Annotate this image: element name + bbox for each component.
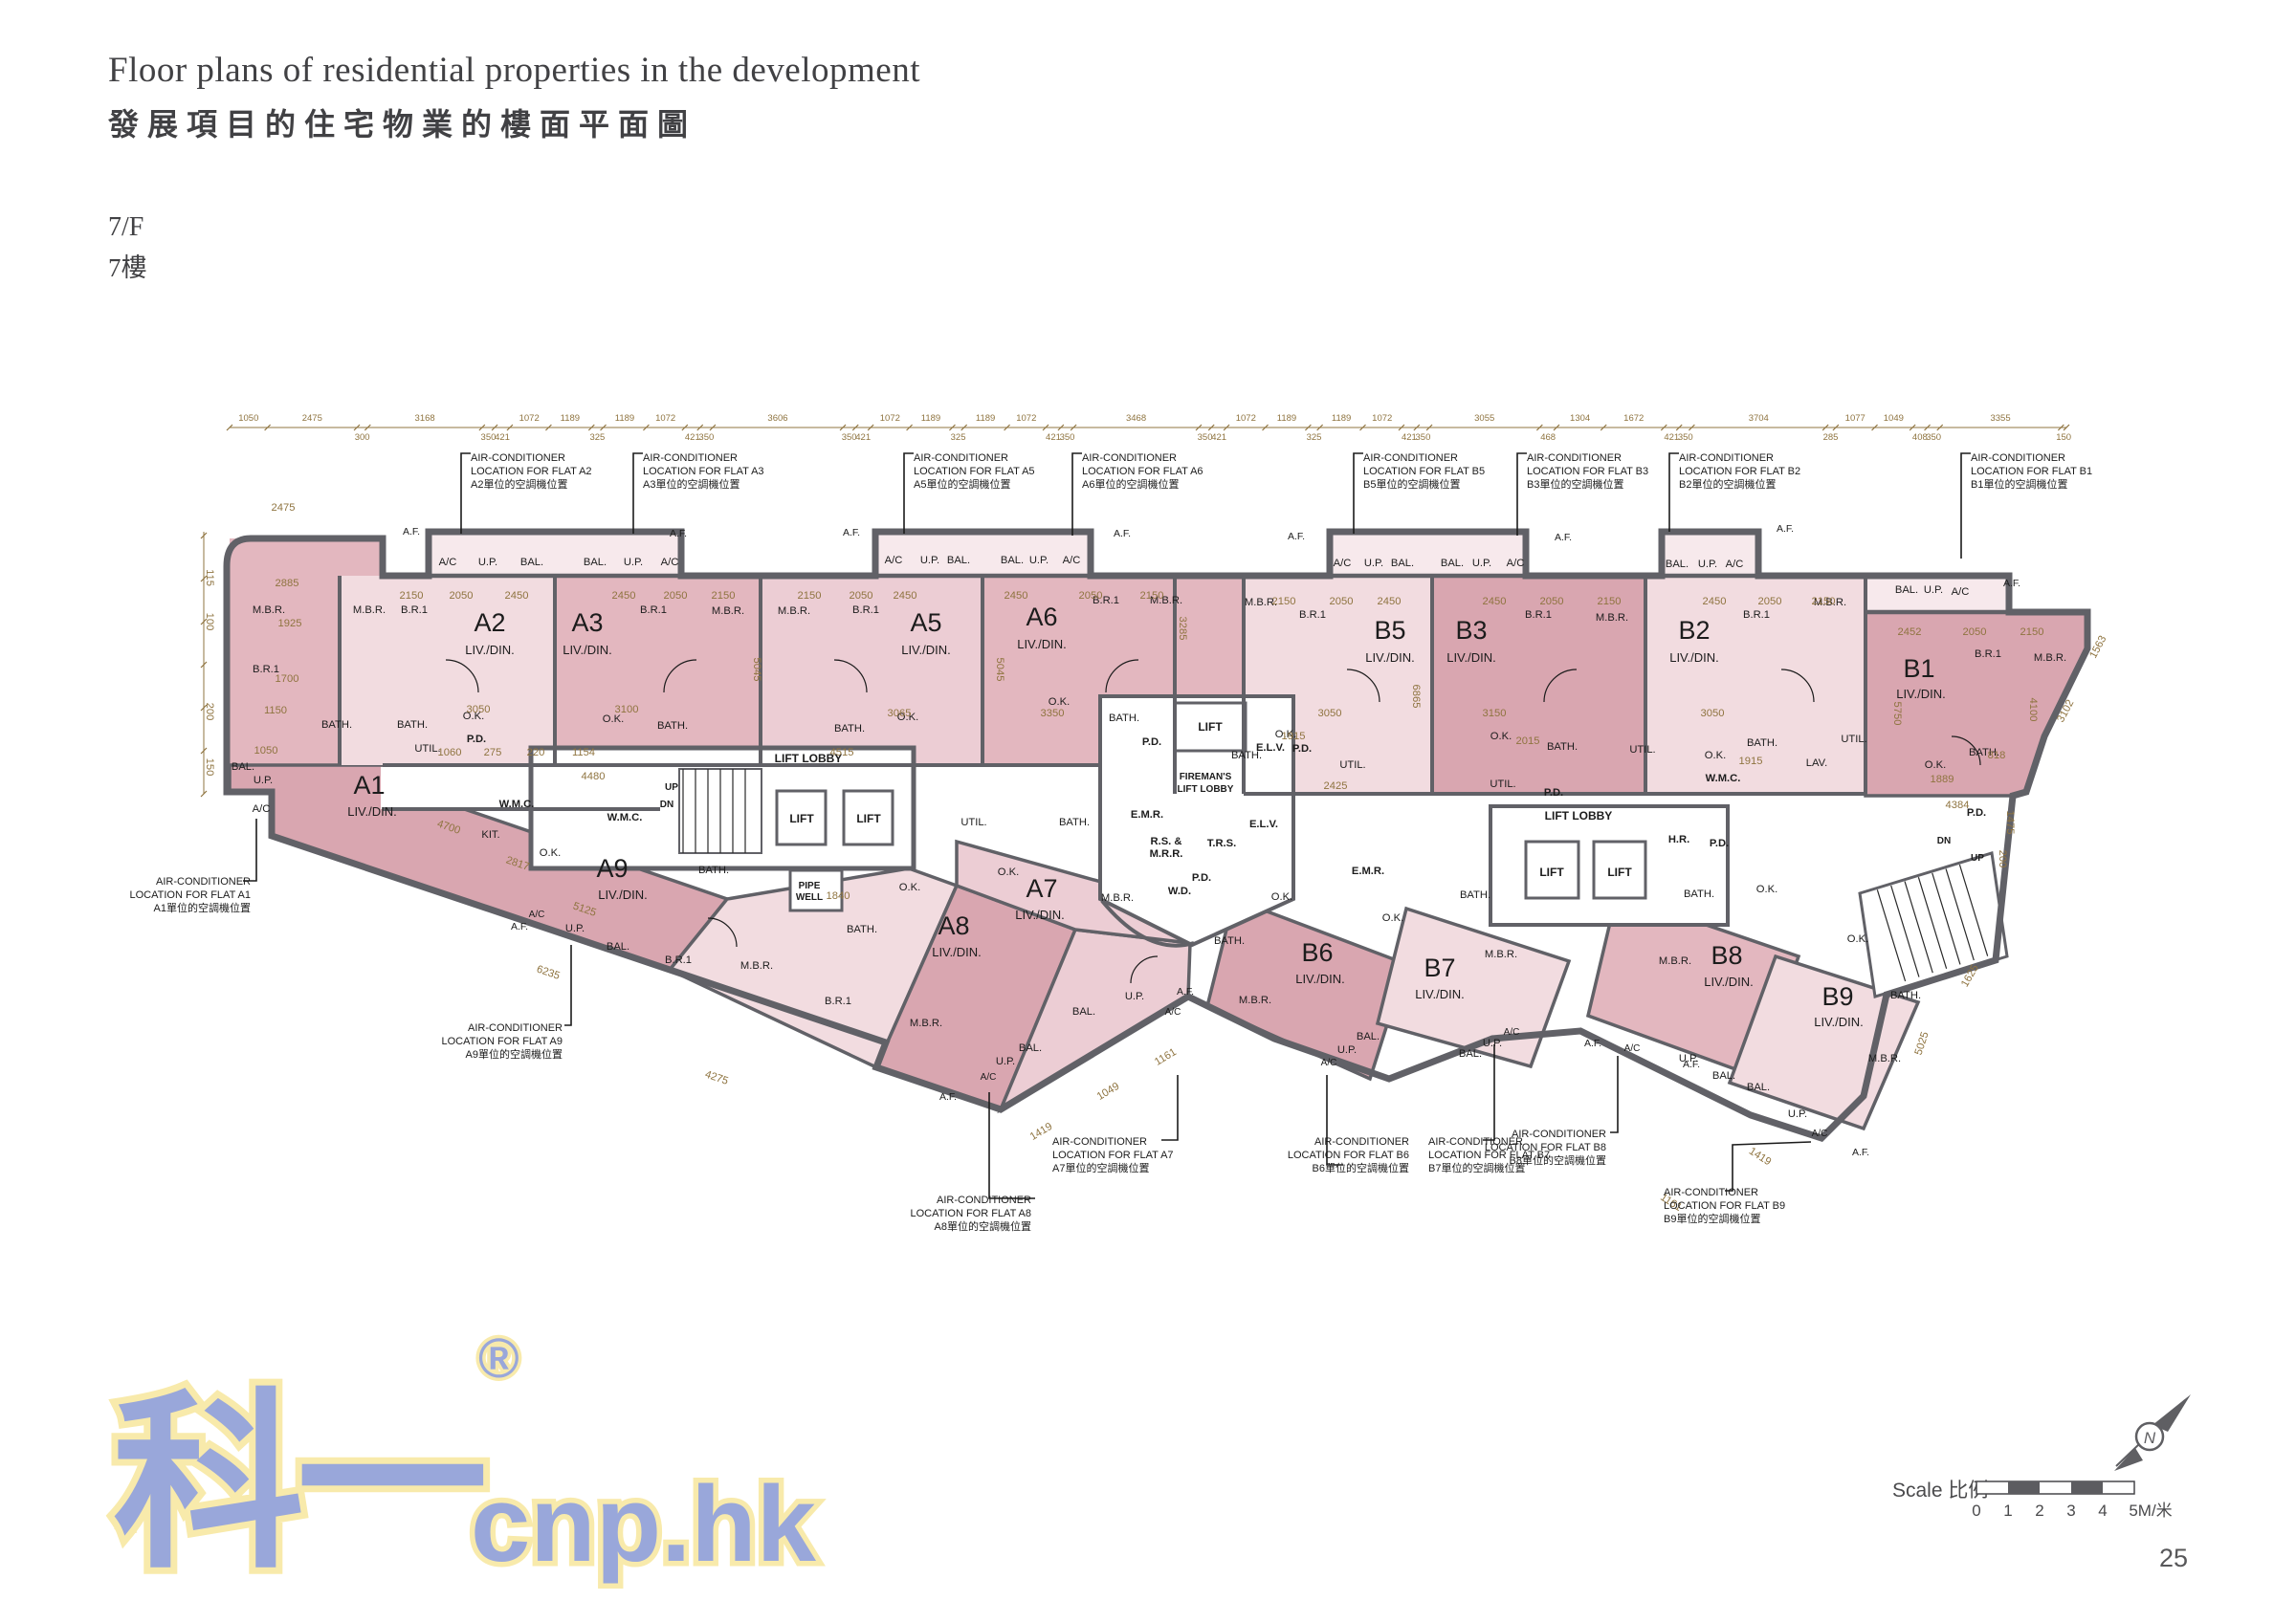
callout-ac-flat-a5-line-3: A5單位的空調機位置 <box>914 477 1010 491</box>
label-b-r-1: B.R.1 <box>852 604 879 616</box>
label-150: 150 <box>204 758 215 777</box>
label-u-p-: U.P. <box>1029 555 1049 566</box>
dim-value: 421 <box>855 432 871 443</box>
label-2150: 2150 <box>1272 596 1296 607</box>
label-a-c: A/C <box>1726 559 1744 570</box>
label-4515: 4515 <box>830 747 854 758</box>
callout-ac-flat-a9-line-2: LOCATION FOR FLAT A9 <box>441 1036 563 1047</box>
label-bath-: BATH. <box>1684 888 1714 900</box>
label-a-f-: A.F. <box>939 1091 957 1103</box>
dim-value: 1189 <box>1332 413 1351 424</box>
label-b-r-1: B.R.1 <box>1525 609 1552 621</box>
callout-ac-flat-b9-line-1: AIR-CONDITIONER <box>1664 1187 1758 1198</box>
callout-ac-flat-b2-line-1: AIR-CONDITIONER <box>1679 452 1774 464</box>
balcony-bump-b5b3 <box>1330 532 1526 576</box>
label-1154: 1154 <box>572 747 595 758</box>
scale-bar-seg-1 <box>2008 1481 2040 1494</box>
label-dn: DN <box>1937 836 1951 846</box>
label-e-m-r-: E.M.R. <box>1352 866 1384 877</box>
label-lav-: LAV. <box>1806 757 1827 769</box>
dim-value: 285 <box>1823 432 1839 443</box>
label-liv-din-: LIV./DIN. <box>932 945 982 959</box>
label-up: UP <box>665 782 678 793</box>
label-1419: 1419 <box>1028 1121 1055 1143</box>
label-u-p-: U.P. <box>1472 558 1491 569</box>
label-1050: 1050 <box>254 745 278 757</box>
callout-ac-flat-b3-leader <box>1517 453 1527 536</box>
callout-ac-flat-b8-line-3: B8單位的空調機位置 <box>1510 1153 1606 1167</box>
label-b-r-1: B.R.1 <box>825 996 851 1007</box>
dim-value: 1072 <box>1016 413 1036 424</box>
callout-ac-flat-a7-line-3: A7單位的空調機位置 <box>1052 1161 1149 1174</box>
label-2150: 2150 <box>1812 596 1836 607</box>
dim-value: 150 <box>2056 432 2071 443</box>
scale-tick-1: 1 <box>2003 1502 2012 1520</box>
label-2150: 2150 <box>400 590 424 602</box>
label-bal-: BAL. <box>520 557 543 568</box>
label-bal-: BAL. <box>584 557 607 568</box>
label-3100: 3100 <box>615 704 639 715</box>
label-5045: 5045 <box>994 658 1005 682</box>
dim-value: 1072 <box>1372 413 1392 424</box>
label-a-c: A/C <box>1334 558 1352 569</box>
label-lift: LIFT <box>1607 866 1632 879</box>
dim-value: 2475 <box>302 413 322 424</box>
label-a-f-: A.F. <box>511 921 528 932</box>
label-2015: 2015 <box>1516 735 1540 747</box>
label-m-b-r-: M.B.R. <box>712 605 744 617</box>
watermark-latin: cnp.hk <box>471 1464 817 1584</box>
label-m-b-r-: M.B.R. <box>1239 995 1271 1006</box>
compass-tail <box>2114 1448 2143 1471</box>
label-2050: 2050 <box>1758 596 1782 607</box>
label-a-c: A/C <box>885 555 903 566</box>
label-1915: 1915 <box>1739 756 1763 767</box>
label-2050: 2050 <box>850 590 873 602</box>
unit-label-b5: B5 <box>1374 616 1405 645</box>
label-a-c: A/C <box>1165 1007 1181 1018</box>
label-bal-: BAL. <box>1357 1031 1380 1042</box>
dim-value: 1672 <box>1623 413 1644 424</box>
dim-value: 325 <box>951 432 966 443</box>
callout-ac-flat-a1-leader <box>243 819 256 881</box>
label-a-c: A/C <box>981 1072 997 1083</box>
dim-value: 1072 <box>1236 413 1256 424</box>
label-4275: 4275 <box>703 1068 729 1086</box>
label-a-f-: A.F. <box>1683 1059 1700 1070</box>
label-o-k-: O.K. <box>1049 696 1070 708</box>
label-e-l-v-: E.L.V. <box>1249 819 1278 830</box>
label-a-c: A/C <box>1063 555 1081 566</box>
label-u-p-: U.P. <box>1125 991 1144 1002</box>
label-w-m-c-: W.M.C. <box>607 812 643 823</box>
label-lift: LIFT <box>1539 866 1564 879</box>
label-lift: LIFT <box>1198 720 1223 734</box>
label-2150: 2150 <box>798 590 822 602</box>
label-a-f-: A.F. <box>2003 578 2020 589</box>
label-util-: UTIL. <box>1339 759 1365 771</box>
label-a-f-: A.F. <box>1584 1038 1601 1049</box>
dim-value: 300 <box>355 432 370 443</box>
label-u-p-: U.P. <box>1483 1038 1502 1049</box>
label-a-c: A/C <box>439 557 457 568</box>
label-1889: 1889 <box>1931 774 1954 785</box>
watermark-registered-icon: ® <box>478 1327 519 1390</box>
dim-value: 421 <box>1211 432 1226 443</box>
label-liv-din-: LIV./DIN. <box>1015 908 1065 922</box>
label-220: 220 <box>527 747 545 758</box>
dim-value: 3055 <box>1474 413 1494 424</box>
label-3150: 3150 <box>1483 708 1507 719</box>
label-2450: 2450 <box>612 590 636 602</box>
dim-value: 1189 <box>615 413 634 424</box>
callout-ac-flat-b7-leader <box>1483 1044 1494 1140</box>
label-p-d-: P.D. <box>1142 736 1161 748</box>
label-u-p-: U.P. <box>920 555 939 566</box>
label-m-b-r-: M.B.R. <box>2034 652 2066 664</box>
label-a-f-: A.F. <box>1177 986 1194 998</box>
label-818: 818 <box>1988 750 2006 761</box>
label-a-c: A/C <box>529 910 545 920</box>
label-liv-din-: LIV./DIN. <box>1669 650 1719 665</box>
label-2450: 2450 <box>894 590 917 602</box>
label-5750: 5750 <box>1891 702 1903 726</box>
callout-ac-flat-a6-line-3: A6單位的空調機位置 <box>1082 477 1179 491</box>
unit-label-a3: A3 <box>571 608 603 637</box>
callout-ac-flat-a2-line-3: A2單位的空調機位置 <box>471 477 567 491</box>
dim-value: 468 <box>1540 432 1556 443</box>
unit-label-a2: A2 <box>474 608 505 637</box>
callout-ac-flat-b3-line-3: B3單位的空調機位置 <box>1527 477 1623 491</box>
callout-ac-flat-b2-leader <box>1669 453 1679 532</box>
callout-ac-flat-b5-leader <box>1354 453 1363 534</box>
callout-ac-flat-a7-line-1: AIR-CONDITIONER <box>1052 1136 1147 1148</box>
label-200: 200 <box>204 703 215 721</box>
page-number: 25 <box>2159 1544 2188 1572</box>
label-a-f-: A.F. <box>843 527 860 538</box>
dim-value: 421 <box>495 432 510 443</box>
callout-ac-flat-b6-line-1: AIR-CONDITIONER <box>1314 1136 1409 1148</box>
label-m-b-r-: M.B.R. <box>910 1018 942 1029</box>
dim-value: 1072 <box>519 413 540 424</box>
label-1915: 1915 <box>1282 731 1306 742</box>
label-a-f-: A.F. <box>670 528 687 539</box>
label-5025: 5025 <box>1913 1030 1932 1056</box>
callout-ac-flat-b1-line-3: B1單位的空調機位置 <box>1971 477 2067 491</box>
label-2050: 2050 <box>1079 590 1103 602</box>
label-a-f-: A.F. <box>1288 531 1305 542</box>
unit-label-a8: A8 <box>938 911 969 940</box>
unit-label-b9: B9 <box>1821 982 1853 1011</box>
dim-value: 1050 <box>238 413 258 424</box>
callout-ac-flat-a2-line-2: LOCATION FOR FLAT A2 <box>471 466 592 477</box>
scale-tick-5: 5M/米 <box>2129 1502 2172 1520</box>
label-kit-: KIT. <box>481 829 499 841</box>
callout-ac-flat-b8-leader <box>1610 1056 1618 1132</box>
dim-value: 350 <box>842 432 857 443</box>
label-bal-: BAL. <box>1072 1006 1095 1018</box>
label-bal-: BAL. <box>1666 559 1689 570</box>
callout-ac-flat-b5-line-2: LOCATION FOR FLAT B5 <box>1363 466 1485 477</box>
label-4480: 4480 <box>582 771 606 782</box>
dim-value: 325 <box>589 432 605 443</box>
unit-label-b8: B8 <box>1711 941 1742 970</box>
callout-ac-flat-a3-leader <box>633 453 643 534</box>
north-compass-icon: N <box>2114 1394 2191 1471</box>
label-util-: UTIL. <box>960 817 986 828</box>
label-h-r-: H.R. <box>1668 834 1689 845</box>
label-m-b-r-: M.B.R. <box>253 604 285 616</box>
label-o-k-: O.K. <box>1847 933 1868 945</box>
label-2050: 2050 <box>1963 626 1987 638</box>
label-m-b-r-: M.B.R. <box>353 604 386 616</box>
dim-value: 421 <box>685 432 700 443</box>
label-u-p-: U.P. <box>1924 584 1943 596</box>
compass-letter: N <box>2144 1429 2156 1447</box>
label-2050: 2050 <box>450 590 474 602</box>
label-a-f-: A.F. <box>1777 523 1794 535</box>
unit-label-b6: B6 <box>1301 938 1333 967</box>
label-b-r-1: B.R.1 <box>665 954 692 966</box>
label-b-r-1: B.R.1 <box>1975 648 2001 660</box>
dim-value: 421 <box>1664 432 1679 443</box>
scale-bar-seg-3 <box>2071 1481 2103 1494</box>
callout-ac-flat-a2-line-1: AIR-CONDITIONER <box>471 452 565 464</box>
callout-ac-flat-b5-line-3: B5單位的空調機位置 <box>1363 477 1460 491</box>
label-2425: 2425 <box>1324 780 1348 792</box>
label-1840: 1840 <box>827 890 850 902</box>
label-bath-: BATH. <box>1460 889 1490 901</box>
callout-ac-flat-a3-line-2: LOCATION FOR FLAT A3 <box>643 466 764 477</box>
label-p-d-: P.D. <box>467 734 486 745</box>
label-a-c: A/C <box>661 557 679 568</box>
label-u-p-: U.P. <box>624 557 643 568</box>
dim-value: 350 <box>1678 432 1693 443</box>
callout-ac-flat-b1-leader <box>1961 453 1971 559</box>
watermark-logo: 科一 ® cnp.hk <box>113 1327 817 1590</box>
dim-value: 350 <box>481 432 497 443</box>
label-util-: UTIL. <box>1629 744 1655 756</box>
dim-value: 350 <box>698 432 714 443</box>
scale-label: Scale 比例 <box>1892 1480 1988 1502</box>
callout-ac-flat-a1-line-2: LOCATION FOR FLAT A1 <box>129 889 251 901</box>
callout-ac-flat-a5-line-2: LOCATION FOR FLAT A5 <box>914 466 1035 477</box>
label-1150: 1150 <box>264 705 287 716</box>
callout-ac-flat-a6-leader <box>1072 453 1082 536</box>
balcony-bump-a2a3 <box>429 532 681 576</box>
callout-ac-flat-b9-line-3: B9單位的空調機位置 <box>1664 1212 1760 1225</box>
label-6865: 6865 <box>1410 685 1422 709</box>
callout-ac-flat-b6-line-3: B6單位的空調機位置 <box>1313 1161 1409 1174</box>
label-m-b-r-: M.B.R. <box>1101 892 1134 904</box>
label-bath-: BATH. <box>1890 990 1921 1001</box>
callout-ac-flat-b8-line-1: AIR-CONDITIONER <box>1512 1129 1606 1140</box>
label-bal-: BAL. <box>1712 1070 1735 1082</box>
label-3050: 3050 <box>1318 708 1342 719</box>
label-100: 100 <box>204 613 215 631</box>
dim-value: 350 <box>1926 432 1941 443</box>
unit-label-a1: A1 <box>353 771 385 800</box>
callout-ac-flat-b9-leader <box>1725 1142 1811 1191</box>
label-u-p-: U.P. <box>1337 1044 1357 1056</box>
dim-value: 350 <box>1060 432 1075 443</box>
label-b-r-1: B.R.1 <box>640 604 667 616</box>
label-a-f-: A.F. <box>1555 532 1572 543</box>
unit-label-b3: B3 <box>1455 616 1487 645</box>
label-lift: LIFT <box>789 812 814 825</box>
label-4100: 4100 <box>2027 698 2039 722</box>
label-a-c: A/C <box>1952 586 1970 598</box>
label-w-d-: W.D. <box>1168 886 1191 897</box>
label-bal-: BAL. <box>1895 584 1918 596</box>
label-3050: 3050 <box>1701 708 1725 719</box>
label-1419: 1419 <box>1747 1146 1773 1169</box>
callout-ac-flat-a7-line-2: LOCATION FOR FLAT A7 <box>1052 1150 1174 1161</box>
floor-plan-drawing: 1050247530031683504211072118932511891072… <box>0 0 2296 1623</box>
label-p-d-: P.D. <box>1292 743 1312 755</box>
label-1700: 1700 <box>276 673 299 685</box>
label-a-c: A/C <box>253 803 271 815</box>
callout-ac-flat-b2-line-2: LOCATION FOR FLAT B2 <box>1679 466 1800 477</box>
callout-ac-flat-b1-line-1: AIR-CONDITIONER <box>1971 452 2065 464</box>
callout-ac-flat-b3-line-1: AIR-CONDITIONER <box>1527 452 1622 464</box>
label-liv-din-: LIV./DIN. <box>1896 687 1946 701</box>
unit-label-a5: A5 <box>910 608 941 637</box>
label-b-r-1: B.R.1 <box>1743 609 1770 621</box>
label-m-r-r-: M.R.R. <box>1150 848 1183 860</box>
label-bath-: BATH. <box>397 719 428 731</box>
label-2450: 2450 <box>1483 596 1507 607</box>
label-bath-: BATH. <box>1109 713 1139 724</box>
label-bath-: BATH. <box>698 865 729 876</box>
unit-label-b7: B7 <box>1424 954 1455 982</box>
callout-ac-flat-a8-line-1: AIR-CONDITIONER <box>937 1195 1031 1206</box>
label-2150: 2150 <box>2020 626 2044 638</box>
callout-ac-flat-a3-line-1: AIR-CONDITIONER <box>643 452 738 464</box>
label-a-c: A/C <box>1624 1043 1641 1054</box>
callout-ac-flat-a1-line-1: AIR-CONDITIONER <box>156 876 251 888</box>
callout-ac-flat-b9-line-2: LOCATION FOR FLAT B9 <box>1664 1200 1785 1212</box>
label-o-k-: O.K. <box>540 847 561 859</box>
callout-ac-flat-a6-line-1: AIR-CONDITIONER <box>1082 452 1177 464</box>
label-liv-din-: LIV./DIN. <box>1814 1015 1864 1029</box>
label-e-l-v-: E.L.V. <box>1256 742 1285 754</box>
label-m-b-r-: M.B.R. <box>1596 612 1628 624</box>
label-t-r-s-: T.R.S. <box>1207 838 1236 849</box>
label-bal-: BAL. <box>1441 558 1464 569</box>
dim-value: 421 <box>1046 432 1061 443</box>
brochure-page: Floor plans of residential properties in… <box>0 0 2296 1623</box>
callout-ac-flat-a1-line-3: A1單位的空調機位置 <box>154 901 251 914</box>
dim-value: 421 <box>1402 432 1417 443</box>
label-bath-: BATH. <box>657 720 688 732</box>
label-up: UP <box>1971 853 1984 864</box>
dim-value: 1189 <box>976 413 995 424</box>
callout-ac-flat-a9-leader <box>564 945 571 1025</box>
label-util-: UTIL. <box>1841 734 1866 745</box>
label-2452: 2452 <box>1898 626 1922 638</box>
watermark-cjk: 科一 <box>113 1377 484 1590</box>
dim-value: 1072 <box>655 413 675 424</box>
label-2450: 2450 <box>1378 596 1402 607</box>
label-3065: 3065 <box>888 708 912 719</box>
label-liv-din-: LIV./DIN. <box>598 888 648 902</box>
unit-label-a9: A9 <box>596 854 628 883</box>
label-dn: DN <box>660 800 673 810</box>
unit-label-b1: B1 <box>1903 654 1934 683</box>
callout-ac-flat-a2-leader <box>461 453 471 534</box>
dim-value: 1072 <box>880 413 900 424</box>
label-liv-din-: LIV./DIN. <box>1704 975 1754 989</box>
label-1563: 1563 <box>2087 634 2108 661</box>
dim-value: 3468 <box>1126 413 1146 424</box>
scale-tick-3: 3 <box>2066 1502 2075 1520</box>
dim-value: 1189 <box>921 413 940 424</box>
label-bal-: BAL. <box>232 761 254 773</box>
callout-ac-flat-b1-line-2: LOCATION FOR FLAT B1 <box>1971 466 2092 477</box>
label-b-r-1: B.R.1 <box>401 604 428 616</box>
label-bal-: BAL. <box>1747 1082 1770 1093</box>
label-o-k-: O.K. <box>1705 750 1726 761</box>
label-2450: 2450 <box>1703 596 1727 607</box>
label-u-p-: U.P. <box>996 1056 1015 1067</box>
scale-bar-track <box>1976 1481 2134 1494</box>
scale-tick-4: 4 <box>2098 1502 2107 1520</box>
dim-value: 1077 <box>1845 413 1865 424</box>
label-bath-: BATH. <box>847 924 877 935</box>
label-liv-din-: LIV./DIN. <box>1415 987 1465 1001</box>
label-4384: 4384 <box>1946 800 1970 811</box>
label-bath-: BATH. <box>1747 737 1777 749</box>
label-p-d-: P.D. <box>1192 872 1211 884</box>
label-lift-lobby-right: LIFT LOBBY <box>1545 809 1613 822</box>
label-bath-: BATH. <box>834 723 865 735</box>
label-lift: LIFT <box>856 812 881 825</box>
label-o-k-: O.K. <box>899 882 920 893</box>
label-b-r-1: B.R.1 <box>1299 609 1326 621</box>
label-m-b-r-: M.B.R. <box>778 605 810 617</box>
dim-value: 1189 <box>1277 413 1296 424</box>
label-3050: 3050 <box>467 704 491 715</box>
scale-tick-0: 0 <box>1972 1502 1980 1520</box>
label-bath-: BATH. <box>1059 817 1090 828</box>
label-liv-din-: LIV./DIN. <box>347 804 397 819</box>
label-6235: 6235 <box>535 963 561 981</box>
label-o-k-: O.K. <box>1490 731 1512 742</box>
label-p-d-: P.D. <box>1710 838 1729 849</box>
callout-ac-flat-a3-line-3: A3單位的空調機位置 <box>643 477 740 491</box>
callout-ac-flat-b8-line-2: LOCATION FOR FLAT B8 <box>1485 1142 1606 1153</box>
callout-ac-flat-a5-line-1: AIR-CONDITIONER <box>914 452 1008 464</box>
label-bal-: BAL. <box>1001 555 1024 566</box>
label-m-b-r-: M.B.R. <box>1485 949 1517 960</box>
label-115: 115 <box>204 569 215 586</box>
label-a-c: A/C <box>1812 1129 1828 1139</box>
label-2150: 2150 <box>1140 590 1164 602</box>
label-u-p-: U.P. <box>1698 559 1717 570</box>
label-lift-lobby: LIFT LOBBY <box>1178 784 1234 795</box>
label-liv-din-: LIV./DIN. <box>1017 637 1067 651</box>
label-u-p-: U.P. <box>478 557 497 568</box>
label-2050: 2050 <box>1330 596 1354 607</box>
callout-ac-flat-b5-line-1: AIR-CONDITIONER <box>1363 452 1458 464</box>
label-bal-: BAL. <box>1459 1048 1482 1060</box>
unit-label-a6: A6 <box>1026 603 1057 631</box>
label-275: 275 <box>484 747 502 758</box>
dim-value: 350 <box>1416 432 1431 443</box>
label-2050: 2050 <box>664 590 688 602</box>
label-pipe: PIPE <box>799 881 821 891</box>
